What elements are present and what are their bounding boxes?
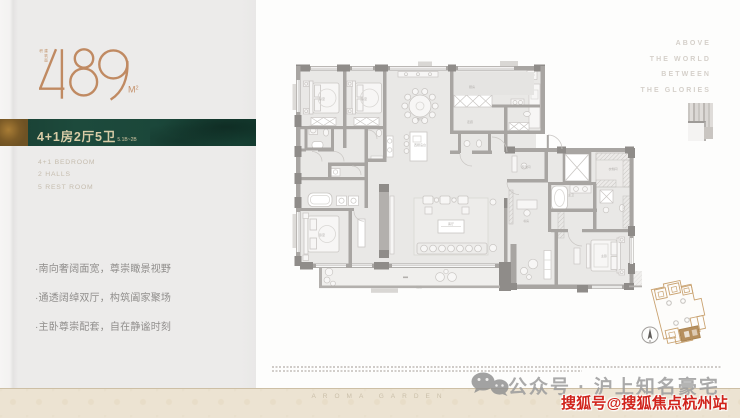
svg-text:主卫: 主卫 bbox=[568, 192, 574, 197]
svg-text:餐厅: 餐厅 bbox=[417, 116, 423, 121]
svg-text:西厨岛台: 西厨岛台 bbox=[414, 142, 426, 147]
svg-text:衣帽间: 衣帽间 bbox=[608, 166, 617, 171]
svg-text:卧室: 卧室 bbox=[319, 96, 325, 101]
svg-text:厨房: 厨房 bbox=[469, 84, 475, 89]
svg-text:书房: 书房 bbox=[523, 218, 529, 223]
svg-text:客厅: 客厅 bbox=[448, 221, 454, 226]
svg-text:家政间: 家政间 bbox=[521, 164, 530, 169]
svg-text:主卧: 主卧 bbox=[601, 253, 607, 258]
svg-text:走廊: 走廊 bbox=[467, 119, 473, 124]
svg-text:卧室: 卧室 bbox=[319, 232, 325, 237]
svg-text:卧室: 卧室 bbox=[361, 96, 367, 101]
svg-text:阳台: 阳台 bbox=[416, 284, 422, 289]
